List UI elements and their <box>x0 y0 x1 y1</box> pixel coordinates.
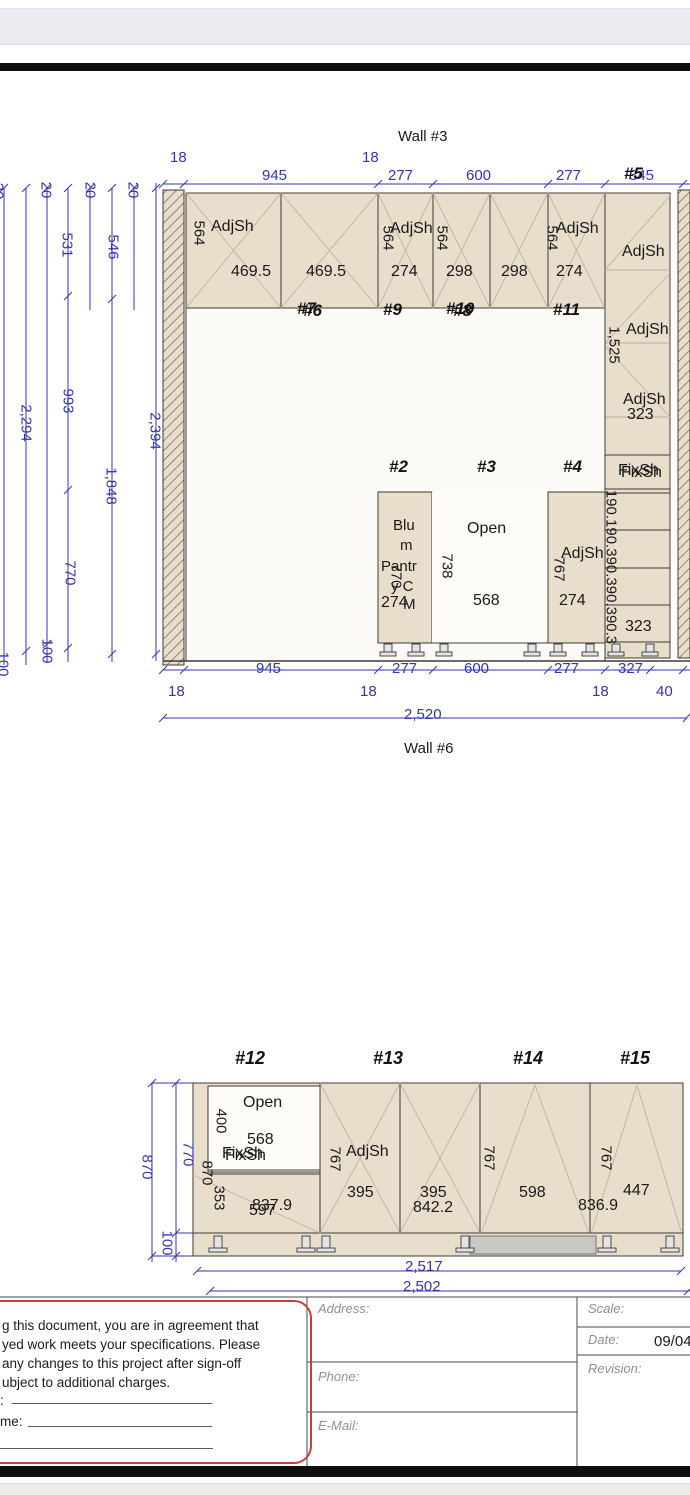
cabinet-5-shelf2: AdjSh <box>626 321 669 339</box>
dim-20-c: 20 <box>82 182 99 199</box>
cabinet-13-shelf: AdjSh <box>346 1143 389 1161</box>
dim-993: 993 <box>60 388 77 413</box>
disclaimer-line2: yed work meets your specifications. Plea… <box>2 1335 260 1354</box>
dim-600-bottom: 600 <box>464 660 489 677</box>
cabinet-12-400: 400 <box>213 1108 230 1133</box>
dim-945-bottom: 945 <box>256 660 281 677</box>
cabinet-5-323b: 323 <box>625 618 652 636</box>
date-value: 09/04 <box>654 1333 690 1350</box>
cabinet-13-label: #13 <box>373 1048 403 1069</box>
cabinet-9-shelf: AdjSh <box>390 220 433 238</box>
dim-277a-bottom: 277 <box>392 660 417 677</box>
cabinet-12-353: 353 <box>211 1185 228 1210</box>
dim-2394: 2,394 <box>147 412 164 450</box>
dim-20-d: 20 <box>125 182 142 199</box>
date-sign-line[interactable] <box>0 1448 213 1449</box>
cabinet-4-door: 274 <box>559 592 586 610</box>
dim-546: 546 <box>105 234 122 259</box>
cabinet-2-height: 770 <box>388 563 405 588</box>
dim-18-top-left: 18 <box>170 149 187 166</box>
scale-label: Scale: <box>588 1301 624 1316</box>
cabinet-6-door2: 469.5 <box>306 263 346 281</box>
dim-2502-total: 2,502 <box>403 1278 441 1295</box>
cabinet-5-drawer-heights: 190.190.390.390.390.3 <box>603 490 620 644</box>
cabinet-5-height: 1,525 <box>606 326 623 364</box>
cabinet-11-shelf: AdjSh <box>556 220 599 238</box>
dim-277b-bottom: 277 <box>554 660 579 677</box>
address-label: Address: <box>318 1301 369 1316</box>
email-label: E-Mail: <box>318 1418 358 1433</box>
cabinet-5-fixsh-ghost: FixSh <box>621 464 662 482</box>
dim-20-a: 20 <box>0 183 7 200</box>
dim-327-bottom: 327 <box>618 660 643 677</box>
date-label: Date: <box>588 1332 619 1347</box>
cabinet-11-label: #11 <box>553 300 580 320</box>
cabinet-12-870: 870 <box>199 1160 216 1185</box>
disclaimer-line1: g this document, you are in agreement th… <box>2 1316 259 1335</box>
wall3-title: Wall #3 <box>398 128 447 145</box>
phone-label: Phone: <box>318 1369 359 1384</box>
cabinet-3-open: Open <box>467 520 506 538</box>
dim-870-lower: 870 <box>139 1154 156 1179</box>
cabinet-5-323: 323 <box>627 406 654 424</box>
cabinet-6-label: #6 <box>303 301 322 321</box>
dim-531: 531 <box>59 232 76 257</box>
dim-277b-top: 277 <box>556 167 581 184</box>
cabinet-14-width: 598 <box>519 1184 546 1202</box>
cabinet-11-door: 274 <box>556 263 583 281</box>
cabinet-12-fixsh-ghost: FixSh <box>225 1147 266 1165</box>
dim-100-b: 100 <box>0 651 12 676</box>
name-label: me: <box>0 1412 23 1431</box>
cabinet-2-name-l2: m <box>400 537 413 554</box>
cabinet-9-label: #9 <box>383 300 402 320</box>
dim-18-bl-c: 18 <box>592 683 609 700</box>
cabinet-14-label: #14 <box>513 1048 543 1069</box>
dim-18-bl-a: 18 <box>168 683 185 700</box>
dim-770-lower: 770 <box>180 1141 197 1166</box>
revision-label: Revision: <box>588 1361 641 1376</box>
dim-100-lower: 100 <box>159 1230 176 1255</box>
cabinet-6-depth: 564 <box>191 220 208 245</box>
cabinet-12-label: #12 <box>235 1048 265 1069</box>
dim-20-b: 20 <box>38 182 55 199</box>
cad-drawing-page: Wall #3 18 18 945 277 600 277 345 #5 20 … <box>0 0 690 1495</box>
dim-1848: 1,848 <box>103 467 120 505</box>
dim-277a-top: 277 <box>388 167 413 184</box>
dim-945-top: 945 <box>262 167 287 184</box>
dim-100-a: 100 <box>39 638 56 663</box>
dim-2520-total: 2,520 <box>404 706 442 723</box>
cabinet-4-shelf: AdjSh <box>561 545 604 563</box>
cabinet-5-label: #5 <box>624 164 643 184</box>
signature-line[interactable] <box>12 1403 212 1404</box>
dim-2517-total: 2,517 <box>405 1258 443 1275</box>
cabinet-3-width: 568 <box>473 592 500 610</box>
cabinet-9-door: 274 <box>391 263 418 281</box>
dim-40-bl: 40 <box>656 683 673 700</box>
signature-label: : <box>0 1391 4 1410</box>
cabinet-13-door1: 395 <box>347 1184 374 1202</box>
cabinet-12-837: 837.9 <box>252 1197 292 1215</box>
cabinet-13-width: 842.2 <box>413 1199 453 1217</box>
dim-2294: 2,294 <box>18 404 35 442</box>
cabinet-3-height: 738 <box>439 553 456 578</box>
name-line[interactable] <box>28 1426 212 1427</box>
cabinet-15-door: 447 <box>623 1182 650 1200</box>
dim-18-top-mid: 18 <box>362 149 379 166</box>
cabinet-14-height: 767 <box>481 1145 498 1170</box>
cabinet-6-shelf: AdjSh <box>211 218 254 236</box>
cabinet-2-name-l1: Blu <box>393 517 415 534</box>
dim-18-bl-b: 18 <box>360 683 377 700</box>
cabinet-8-label: #8 <box>453 301 472 321</box>
cabinet-13-height: 767 <box>327 1146 344 1171</box>
cabinet-8-depth: 564 <box>434 225 451 250</box>
wall6-title: Wall #6 <box>404 740 453 757</box>
cabinet-5-shelf1: AdjSh <box>622 243 665 261</box>
cabinet-8-door2: 298 <box>501 263 528 281</box>
dim-600-top: 600 <box>466 167 491 184</box>
cabinet-15-label: #15 <box>620 1048 650 1069</box>
cabinet-15-width: 836.9 <box>578 1197 618 1215</box>
cabinet-2-door: 274 <box>381 594 408 612</box>
disclaimer-line3: any changes to this project after sign-o… <box>2 1354 241 1373</box>
disclaimer-line4: ubject to additional charges. <box>2 1373 170 1392</box>
cabinet-4-label: #4 <box>563 457 582 477</box>
cabinet-6-door1: 469.5 <box>231 263 271 281</box>
cabinet-8-door1: 298 <box>446 263 473 281</box>
cabinet-12-open: Open <box>243 1094 282 1112</box>
dim-770: 770 <box>62 560 79 585</box>
cabinet-2-label: #2 <box>389 457 408 477</box>
cabinet-3-label: #3 <box>477 457 496 477</box>
cabinet-15-height: 767 <box>598 1145 615 1170</box>
